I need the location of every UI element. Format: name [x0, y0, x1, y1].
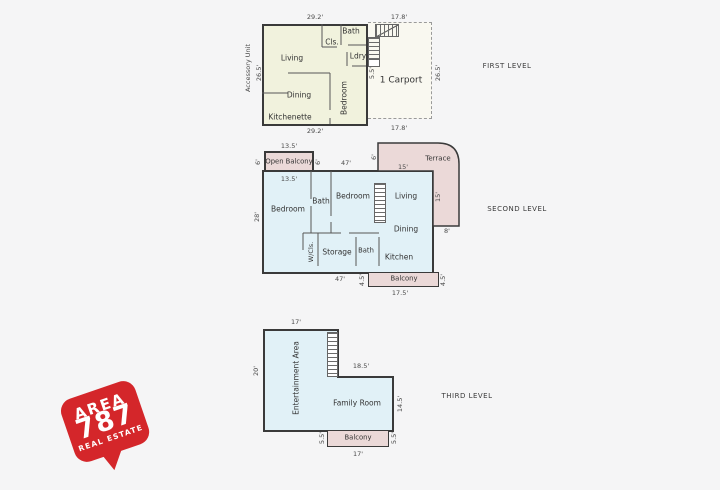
dim-l1-stair: 5.5'	[369, 67, 376, 79]
kitchen-label-l2: Kitchen	[385, 253, 413, 261]
dim-l1-right: 26.5'	[435, 65, 442, 81]
dim-l2-bottom: 47'	[335, 276, 345, 283]
dim-l2-open-balcony-top: 13.5'	[281, 143, 297, 150]
living-label-l2: Living	[395, 192, 417, 200]
dim-l3-top: 17'	[291, 319, 301, 326]
bedroom-mid-label-l2: Bedroom	[336, 192, 370, 200]
dim-l1-bottom-right: 17.8'	[391, 125, 407, 132]
first-level-stairs-landing	[368, 59, 380, 67]
water-closet-label-l2: W/Cls.	[308, 242, 315, 262]
dining-label-l1: Dining	[287, 91, 311, 99]
closet-label-l1: Cls.	[325, 38, 339, 46]
first-level-stairs-upper-run	[375, 24, 399, 37]
entertainment-area-label: Entertainment Area	[292, 341, 300, 415]
bedroom-left-label-l2: Bedroom	[271, 205, 305, 213]
second-level-stairs	[374, 183, 386, 223]
dim-l2-balcony-right: 4.5'	[440, 274, 447, 286]
dim-l2-top: 47'	[341, 160, 351, 167]
dim-l2-balcony-bottom: 17.5'	[392, 290, 408, 297]
dim-l1-left: 26.5'	[256, 65, 263, 81]
living-room-label-l1: Living	[281, 54, 303, 62]
second-level-title: SECOND LEVEL	[487, 205, 547, 213]
dim-l2-terrace-top: 15'	[398, 164, 408, 171]
floor-plan-sheet: { "branding": { "word_top": "AREA", "num…	[0, 0, 720, 480]
dim-l3-right: 14.5'	[397, 396, 404, 412]
accessory-unit-label: Accessory Unit	[245, 44, 252, 92]
dim-l2-open-balcony-right: 6'	[315, 159, 322, 165]
dim-l3-mid: 18.5'	[353, 363, 369, 370]
dim-l3-balcony-bottom: 17'	[353, 451, 363, 458]
third-level-stairs	[327, 332, 338, 377]
dim-l2-terrace-left: 6'	[371, 154, 378, 160]
open-balcony-label: Open Balcony	[265, 159, 312, 166]
balcony-label-l2: Balcony	[391, 276, 418, 283]
dim-l3-balcony-left: 5.5'	[319, 432, 326, 444]
dim-l1-top-left: 29.2'	[307, 14, 323, 21]
storage-label-l2: Storage	[322, 248, 351, 256]
bath-top-label-l2: Bath	[312, 197, 329, 205]
bath-bottom-label-l2: Bath	[358, 248, 374, 255]
dim-l3-balcony-right: 5.5'	[391, 432, 398, 444]
first-level-stairs-lower-run	[368, 37, 380, 60]
dim-l1-bottom-left: 29.2'	[307, 128, 323, 135]
dim-l1-top-right: 17.8'	[391, 14, 407, 21]
terrace-label: Terrace	[425, 156, 450, 163]
dining-label-l2: Dining	[394, 225, 418, 233]
dim-l2-left: 28'	[254, 212, 261, 222]
dim-l3-left: 20'	[253, 366, 260, 376]
first-level-interior-walls	[262, 24, 366, 124]
family-room-label: Family Room	[333, 399, 381, 407]
third-level-title: THIRD LEVEL	[441, 392, 492, 400]
carport-label: 1 Carport	[380, 77, 423, 86]
dim-l2-open-balcony-left: 6'	[255, 159, 262, 165]
dim-l2-terrace-right: 15'	[435, 192, 442, 202]
first-level-title: FIRST LEVEL	[483, 62, 532, 70]
dim-l2-terrace-bottom: 8'	[444, 228, 450, 235]
laundry-label-l1: Ldry	[350, 52, 366, 60]
bath-label-l1: Bath	[342, 27, 359, 35]
bedroom-label-l1: Bedroom	[340, 81, 348, 115]
dim-l2-inner-top: 13.5'	[281, 176, 297, 183]
dim-l2-balcony-left: 4.5'	[359, 274, 366, 286]
kitchenette-label: Kitchenette	[268, 113, 311, 121]
balcony-label-l3: Balcony	[345, 435, 372, 442]
